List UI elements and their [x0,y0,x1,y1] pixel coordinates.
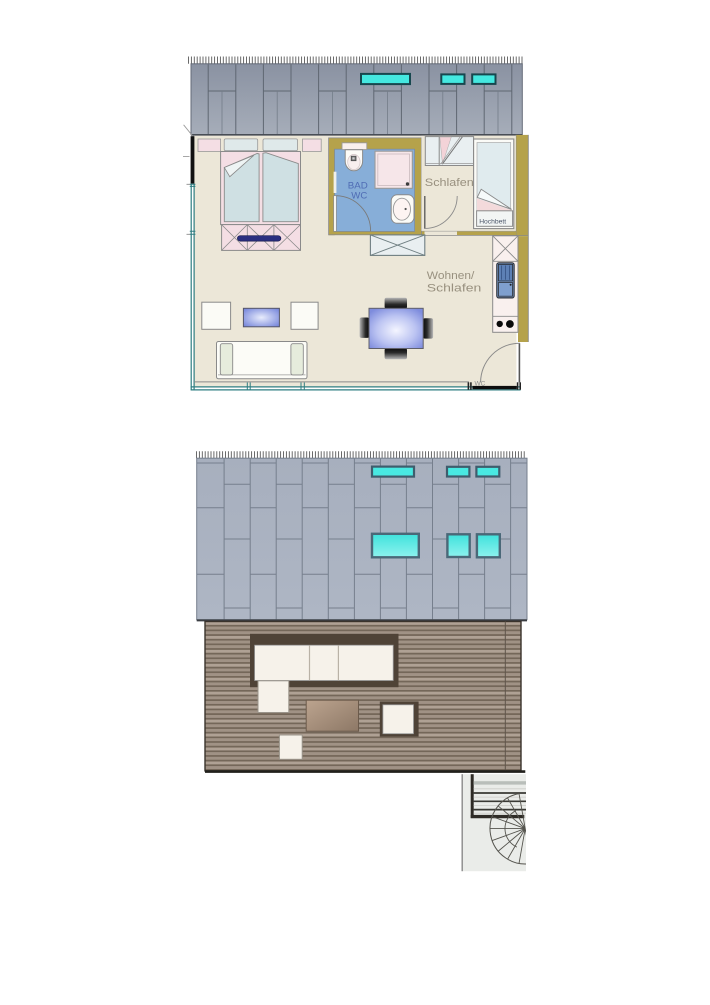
svg-text:BAD: BAD [348,180,369,190]
svg-text:WC: WC [351,190,368,200]
svg-text:Schlafen: Schlafen [427,283,482,295]
svg-text:Wohnen/: Wohnen/ [427,270,476,282]
svg-text:WC: WC [475,380,486,387]
svg-text:Schlafen: Schlafen [425,177,474,189]
svg-text:Hochbett: Hochbett [479,219,506,226]
